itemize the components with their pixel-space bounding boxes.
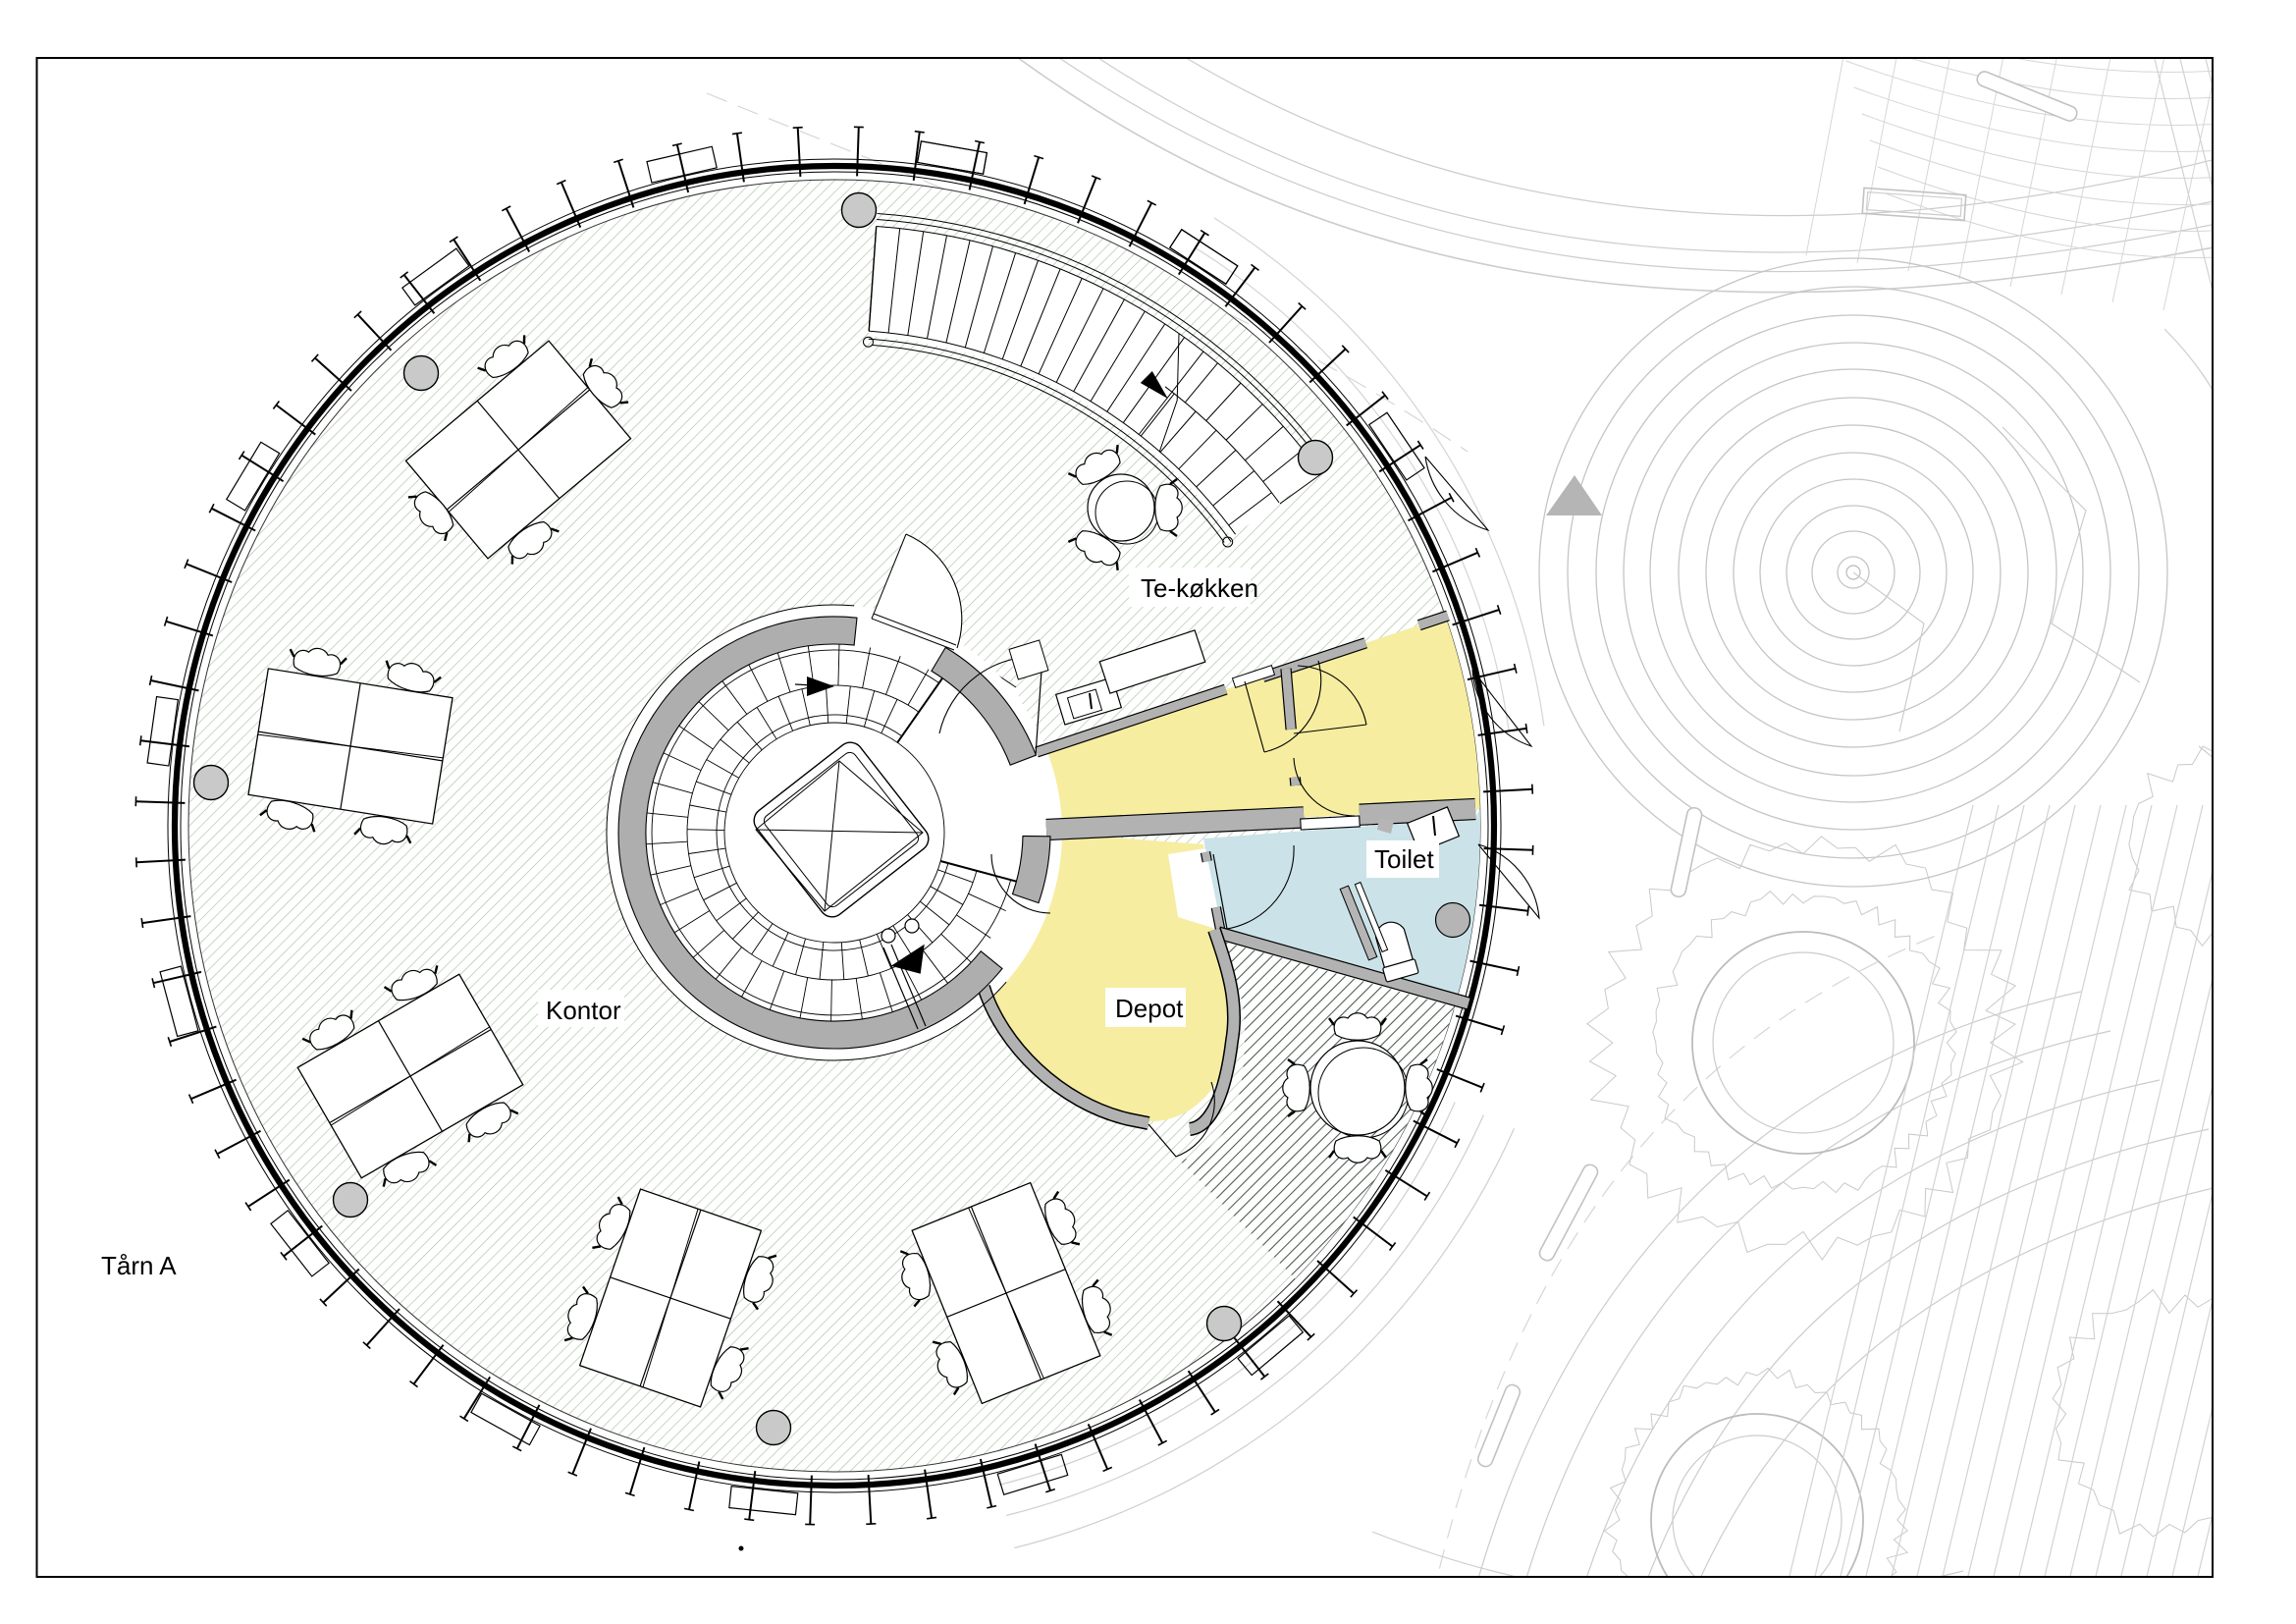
- svg-text:Toilet: Toilet: [1374, 844, 1434, 874]
- svg-text:Te-køkken: Te-køkken: [1141, 573, 1258, 603]
- svg-text:Tårn A: Tårn A: [101, 1251, 177, 1280]
- svg-text:Kontor: Kontor: [546, 996, 621, 1025]
- svg-text:Depot: Depot: [1115, 994, 1184, 1023]
